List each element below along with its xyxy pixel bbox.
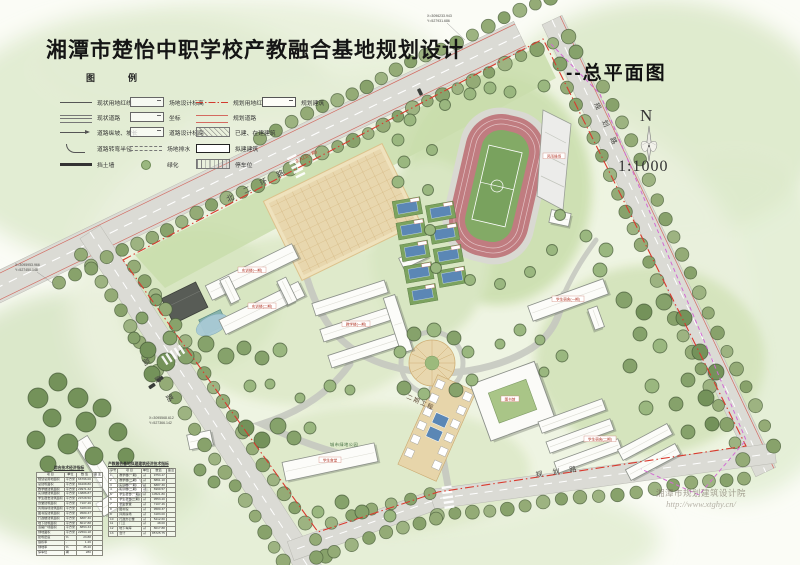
greenery-icon <box>130 159 162 169</box>
building-tag: 教学楼(一期) <box>342 321 370 327</box>
north-label: N <box>640 106 652 126</box>
building-tag: 图书馆 <box>501 396 519 402</box>
svg-text:学生宿舍(一期): 学生宿舍(一期) <box>556 297 580 302</box>
road-elevation-icon <box>130 127 164 137</box>
svg-text:学生食堂: 学生食堂 <box>323 458 338 463</box>
legend-item: 现状道路 <box>60 112 120 122</box>
site-drainage-icon <box>130 143 162 153</box>
legend-heading-left: 图 <box>86 71 95 84</box>
scale-label: 1:1000 <box>618 158 668 176</box>
turn-radius-icon <box>60 143 92 153</box>
svg-text:风雨操场: 风雨操场 <box>547 154 562 159</box>
svg-text:图书馆: 图书馆 <box>505 397 516 402</box>
parking-icon <box>196 159 230 169</box>
legend-item: 现状用地红线 <box>60 97 132 107</box>
svg-text:X=3095568.612: X=3095568.612 <box>149 416 174 420</box>
legend-item: 道路设计标高 <box>130 127 204 137</box>
svg-text:Y=527450.148: Y=527450.148 <box>15 268 38 272</box>
svg-text:Y=527931.686: Y=527931.686 <box>427 19 450 23</box>
proposed-building-icon <box>196 144 230 153</box>
plan-sheet-label: --总平面图 <box>566 58 667 85</box>
legend-item: 规划建筑 <box>262 97 324 107</box>
existing-building-icon <box>196 127 230 137</box>
coordinate-callout: X=3095568.612Y=527366.142 <box>149 416 174 425</box>
site-elevation-icon <box>130 97 164 107</box>
park-label: 城市绿地公园 <box>330 441 358 448</box>
planned-building-icon <box>262 97 296 107</box>
svg-text:Y=527366.142: Y=527366.142 <box>149 421 172 425</box>
planned-road-icon <box>196 115 228 123</box>
legend-item: 拟建建筑 <box>196 143 258 153</box>
page-title: 湘潭市楚怡中职学校产教融合基地规划设计 <box>46 34 464 64</box>
svg-text:实训楼(一期): 实训楼(一期) <box>242 268 262 273</box>
buildings-indicators-table: 产教融合基地拟建建筑经济技术指标序号项 目单位数值备注1教学楼(一期)㎡9753… <box>108 462 164 537</box>
building-tag: 实训楼(一期) <box>238 267 266 273</box>
building-tag: 学生食堂 <box>319 457 341 463</box>
coordinate-icon <box>130 112 164 122</box>
planning-redline-icon <box>196 97 228 107</box>
retaining-wall-icon <box>60 159 92 169</box>
legend-item: 规划用地红线 <box>196 97 268 107</box>
legend-item: 坐标 <box>130 112 181 122</box>
legend-item: 停车位 <box>196 159 252 169</box>
site-plan-page: 北二环路 高岭路 规划路 规划路 X=3096233.943Y=527931.6… <box>0 0 800 565</box>
building-tag: 实训楼(二期) <box>248 303 276 309</box>
legend-item: 道路纵坡、坡长 <box>60 127 138 137</box>
legend-item: 挡土墙 <box>60 159 114 169</box>
building-tag: 风雨操场 <box>543 153 565 159</box>
legend-heading-right: 例 <box>128 71 137 84</box>
svg-text:学生宿舍(二期): 学生宿舍(二期) <box>588 437 612 442</box>
existing-road-icon <box>60 115 92 123</box>
legend-item: 场地设计标高 <box>130 97 204 107</box>
legend-item: 道路转弯半径 <box>60 143 132 153</box>
svg-text:教学楼(一期): 教学楼(一期) <box>346 322 366 327</box>
legend-item: 场地排水 <box>130 143 190 153</box>
building-tag: 学生宿舍(二期) <box>584 436 616 442</box>
legend-item: 已建、在建建筑 <box>196 127 276 137</box>
legend-item: 绿化 <box>130 159 179 169</box>
building-tag: 学生宿舍(一期) <box>552 296 584 302</box>
legend-item: 规划道路 <box>196 112 256 122</box>
svg-text:实训楼(二期): 实训楼(二期) <box>252 304 272 309</box>
svg-text:X=3095953.966: X=3095953.966 <box>15 263 40 267</box>
existing-redline-icon <box>60 97 92 107</box>
economic-indicators-table: 综合技术经济指标项 目单位数 值备 注规划总用地面积平方米66766.00总建筑… <box>36 466 102 556</box>
svg-text:X=3096233.943: X=3096233.943 <box>427 14 452 18</box>
road-slope-icon <box>60 127 92 137</box>
